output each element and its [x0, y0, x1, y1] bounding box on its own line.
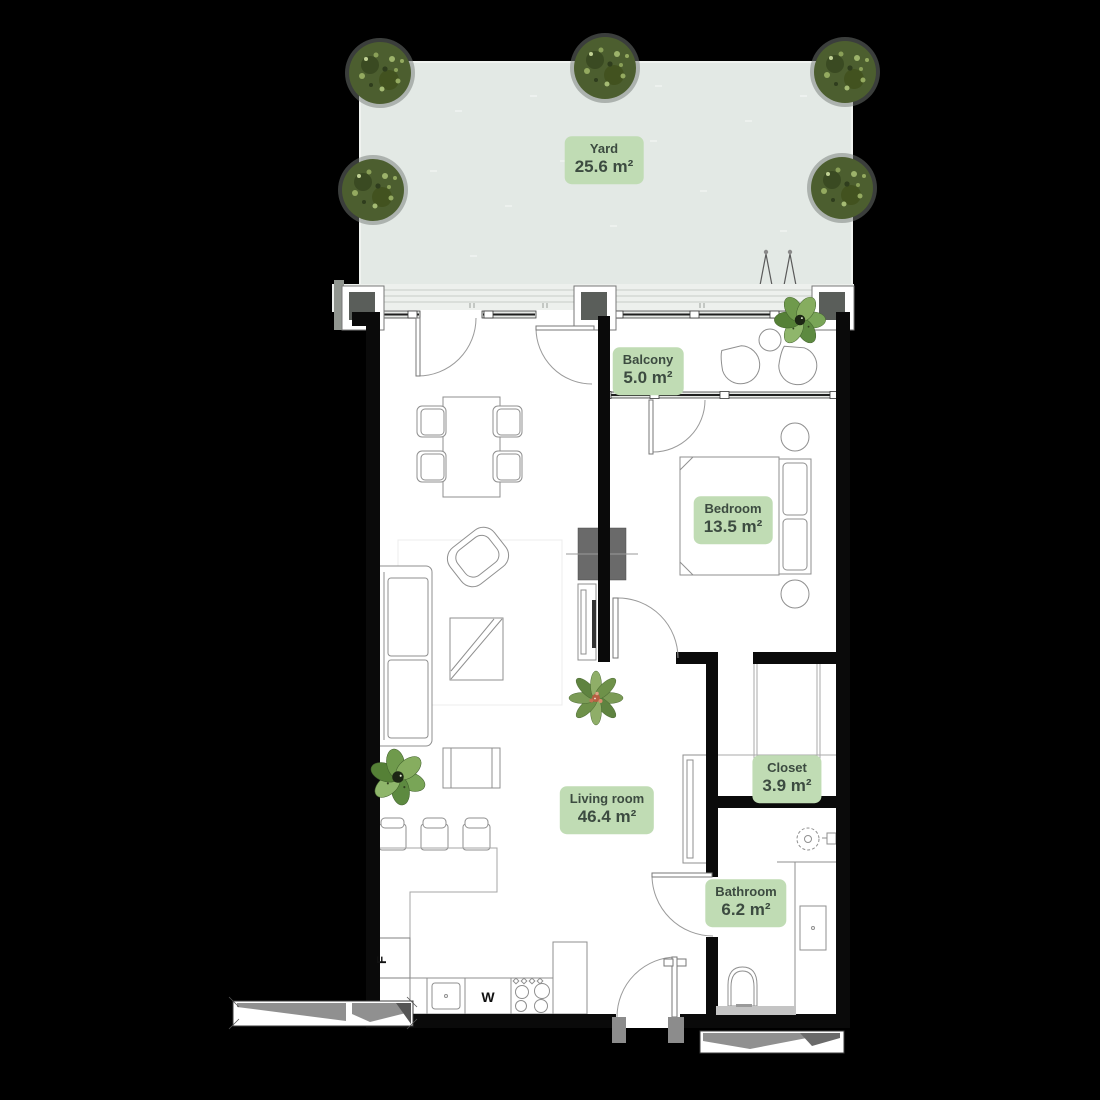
room-label-yard: Yard 25.6 m²	[565, 136, 644, 184]
balcony-table	[759, 329, 781, 351]
tv-board	[578, 584, 596, 660]
dining-table	[443, 397, 500, 497]
bedroom-balcony-door-leaf	[649, 400, 653, 454]
bar-stools	[379, 818, 490, 850]
floorplan-graphic: F W	[0, 0, 1100, 1100]
room-label-bedroom: Bedroom 13.5 m²	[694, 496, 773, 544]
room-name: Yard	[575, 141, 634, 157]
sofa	[372, 566, 432, 746]
nightstand	[781, 580, 809, 608]
nightstand	[781, 423, 809, 451]
bedroom-door-leaf	[613, 598, 618, 658]
side-table	[443, 748, 500, 788]
room-name: Bathroom	[715, 884, 776, 900]
room-label-bathroom: Bathroom 6.2 m²	[705, 879, 786, 927]
room-name: Living room	[570, 791, 644, 807]
floorplan-stage: F W Yard 25.6 m² Balcony 5.0 m² Bedroom …	[0, 0, 1100, 1100]
bathroom-door-leaf	[652, 873, 712, 877]
entry-door-post	[668, 1017, 684, 1043]
room-area: 46.4 m²	[570, 807, 644, 828]
washer-letter: W	[481, 989, 495, 1005]
room-name: Balcony	[623, 352, 674, 368]
wardrobe	[683, 755, 710, 863]
room-area: 3.9 m²	[762, 776, 811, 797]
patio-door-leaf	[536, 326, 594, 330]
coffee-table	[450, 618, 503, 680]
entry-door-post	[612, 1017, 626, 1043]
fridge-letter: F	[374, 956, 389, 964]
room-area: 5.0 m²	[623, 368, 674, 389]
toilet-base-mark	[736, 1004, 752, 1007]
room-area: 13.5 m²	[704, 517, 763, 538]
room-label-closet: Closet 3.9 m²	[752, 755, 821, 803]
patio-door-leaf	[416, 318, 420, 376]
flower-plant	[569, 671, 623, 725]
kitchen-cabinet	[553, 942, 587, 1014]
room-name: Closet	[762, 760, 811, 776]
toilet	[728, 967, 757, 1006]
bathroom-threshold	[716, 1006, 796, 1015]
ramp-right	[700, 1031, 844, 1053]
room-label-balcony: Balcony 5.0 m²	[613, 347, 684, 395]
room-name: Bedroom	[704, 501, 763, 517]
room-label-living-room: Living room 46.4 m²	[560, 786, 654, 834]
room-area: 25.6 m²	[575, 157, 634, 178]
room-area: 6.2 m²	[715, 900, 776, 921]
ramp-left	[229, 997, 417, 1029]
